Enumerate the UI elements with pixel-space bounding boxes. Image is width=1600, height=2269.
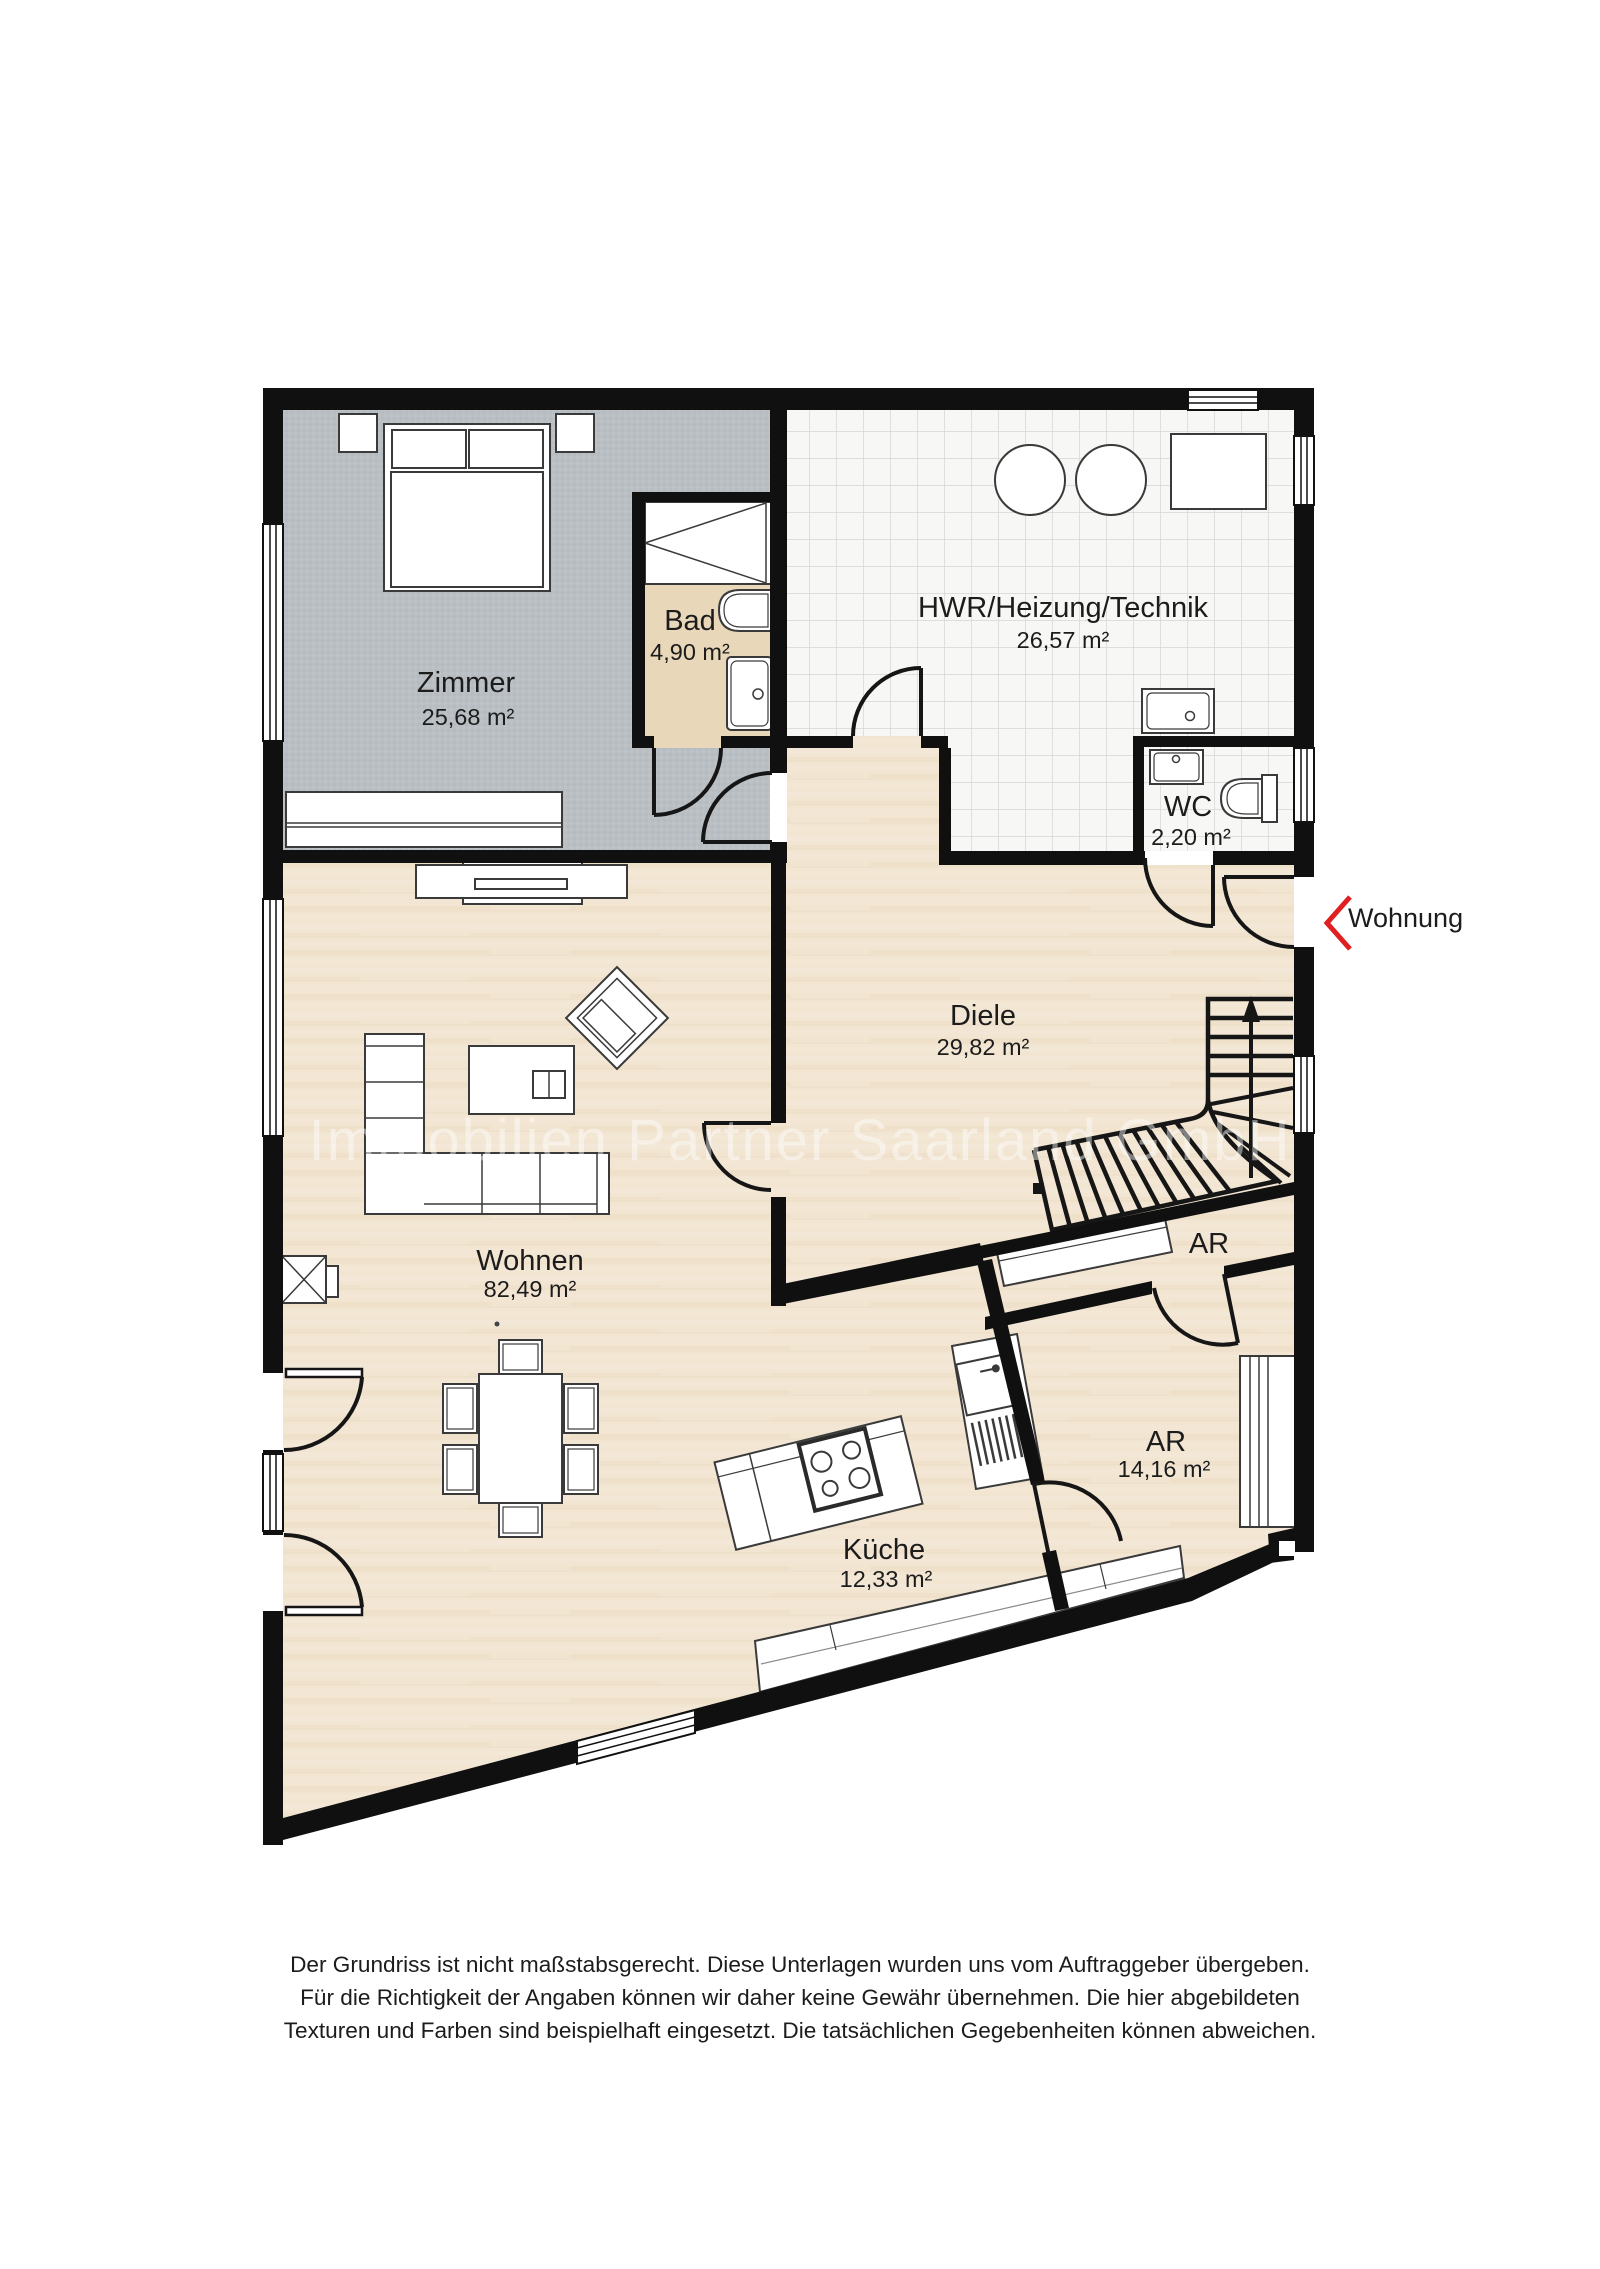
svg-text:2,20 m²: 2,20 m² bbox=[1151, 824, 1231, 850]
svg-text:29,82 m²: 29,82 m² bbox=[937, 1034, 1030, 1060]
svg-text:14,16 m²: 14,16 m² bbox=[1118, 1456, 1211, 1482]
svg-text:26,57 m²: 26,57 m² bbox=[1017, 627, 1110, 653]
svg-text:AR: AR bbox=[1189, 1228, 1229, 1260]
svg-text:Für die Richtigkeit der Angabe: Für die Richtigkeit der Angaben können w… bbox=[300, 1985, 1300, 2010]
svg-text:Immobilien Partner Saarland Gm: Immobilien Partner Saarland GmbH bbox=[309, 1108, 1292, 1173]
svg-text:25,68 m²: 25,68 m² bbox=[422, 704, 515, 730]
svg-text:Bad: Bad bbox=[664, 605, 716, 637]
svg-text:Wohnung: Wohnung bbox=[1348, 903, 1463, 933]
svg-text:Zimmer: Zimmer bbox=[417, 667, 516, 699]
svg-text:AR: AR bbox=[1146, 1426, 1186, 1458]
svg-text:Wohnen: Wohnen bbox=[476, 1245, 584, 1277]
svg-text:Diele: Diele bbox=[950, 1000, 1016, 1032]
svg-text:Texturen und Farben sind beisp: Texturen und Farben sind beispielhaft ei… bbox=[284, 2018, 1316, 2043]
svg-text:Küche: Küche bbox=[843, 1534, 925, 1566]
svg-text:4,90 m²: 4,90 m² bbox=[650, 639, 730, 665]
svg-text:Der Grundriss ist nicht maßsta: Der Grundriss ist nicht maßstabsgerecht.… bbox=[290, 1952, 1310, 1977]
svg-text:82,49 m²: 82,49 m² bbox=[484, 1276, 577, 1302]
svg-text:12,33 m²: 12,33 m² bbox=[840, 1566, 933, 1592]
svg-text:HWR/Heizung/Technik: HWR/Heizung/Technik bbox=[918, 592, 1209, 624]
svg-text:WC: WC bbox=[1164, 791, 1212, 823]
